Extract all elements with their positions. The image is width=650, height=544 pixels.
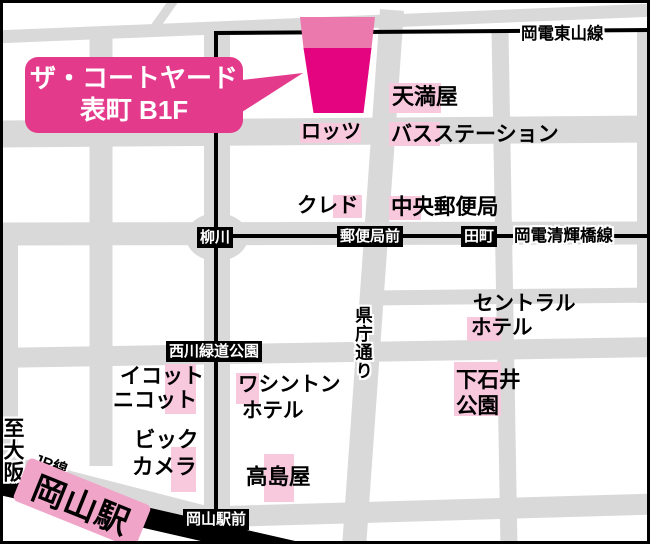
label-bic-line2: カメラ xyxy=(132,457,197,479)
callout-label: ザ・コートヤード 表町 B1F xyxy=(25,57,243,133)
label-tenmaya: 天満屋 xyxy=(392,86,458,108)
map-canvas: ザ・コートヤード 表町 B1F ロッツ 天満屋 バスステーション クレド 中央郵… xyxy=(0,0,650,544)
label-shimoishii-line1: 下石井 xyxy=(456,370,521,392)
callout-line1: ザ・コートヤード xyxy=(30,63,238,95)
label-higashiyama-line: 岡電東山線 xyxy=(521,26,604,43)
lotz-building xyxy=(300,17,375,113)
label-post-office: 中央郵便局 xyxy=(391,197,499,219)
stop-tamachi: 田町 xyxy=(461,226,497,247)
callout-pointer xyxy=(242,73,303,112)
road-right-vertical xyxy=(500,31,509,544)
label-icot-line1: イコット xyxy=(120,366,204,387)
label-shimoishii-line2: 公園 xyxy=(456,396,499,418)
label-cred: クレド xyxy=(297,196,359,217)
stop-nishigawa-ryokudo-koen: 西川緑道公園 xyxy=(166,341,262,362)
stop-yanagawa: 柳川 xyxy=(197,227,233,248)
lotz-building-top xyxy=(300,17,375,48)
label-lotz: ロッツ xyxy=(301,122,361,142)
callout-line2: 表町 B1F xyxy=(80,95,188,127)
label-seikibashi-line: 岡電清輝橋線 xyxy=(514,228,613,245)
label-central-hotel-line2: ホテル xyxy=(471,318,533,339)
stop-okayama-eki-mae: 岡山駅前 xyxy=(183,509,249,530)
lotz-building-body xyxy=(304,48,372,113)
label-washington-line2: ホテル xyxy=(242,401,304,422)
label-bus-station: バスステーション xyxy=(391,124,559,145)
label-bic-line1: ビック xyxy=(134,430,199,452)
label-takashimaya: 高島屋 xyxy=(246,467,311,489)
stop-yubinkyoku-mae: 郵便局前 xyxy=(337,226,403,247)
label-icot-line2: ニコット xyxy=(113,390,197,411)
label-washington-line1: ワシントン xyxy=(238,375,341,396)
label-to-osaka: 至大阪 xyxy=(2,417,23,483)
label-kencho-dori: 県庁通り xyxy=(354,306,372,380)
label-central-hotel-line1: セントラル xyxy=(473,294,576,315)
